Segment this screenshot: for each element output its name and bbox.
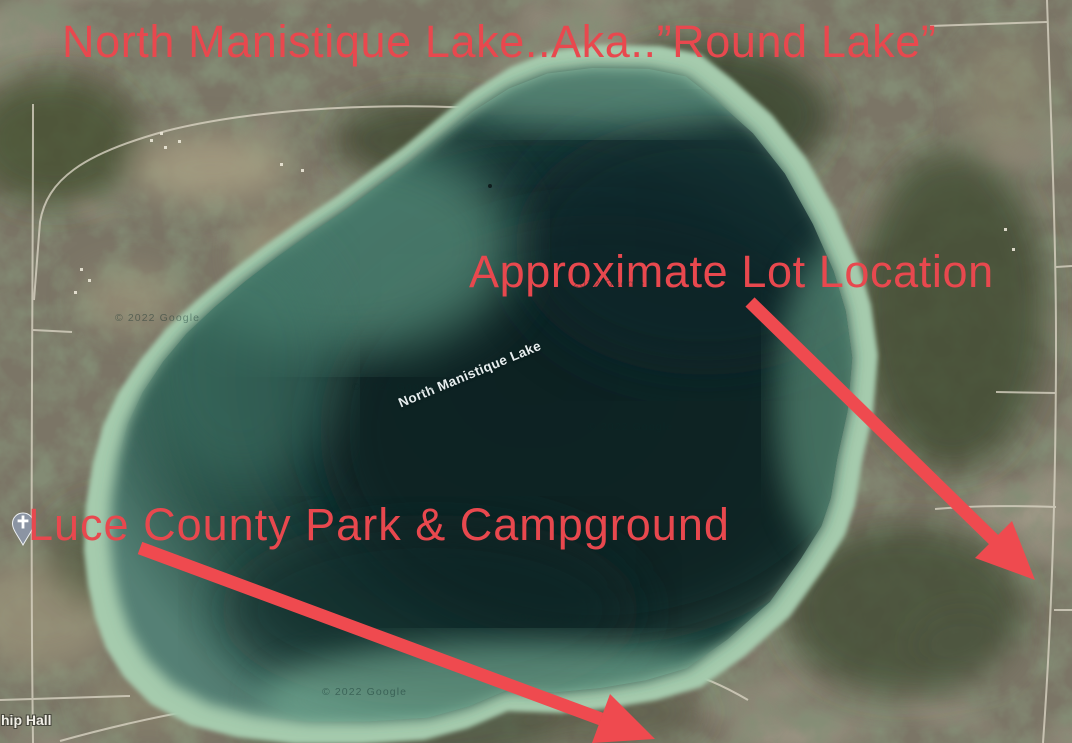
google-watermark: © 2022 Google [352, 381, 437, 393]
park-campground-label: Luce County Park & Campground [28, 502, 730, 547]
township-hall-label: hip Hall [1, 712, 52, 728]
google-watermark: © 2022 Google [588, 421, 673, 433]
lot-location-label: Approximate Lot Location [469, 249, 994, 294]
map-canvas[interactable] [0, 0, 1072, 743]
google-watermark: © 2022 Google [322, 686, 407, 698]
google-watermark: © 2022 Google [115, 312, 200, 324]
google-watermark: © 2022 Google [500, 612, 585, 624]
google-watermark: © 2022 Google [560, 278, 645, 290]
map-title-annotation: North Manistique Lake..Aka..”Round Lake” [62, 19, 936, 64]
annotated-satellite-map: North Manistique Lake..Aka..”Round Lake”… [0, 0, 1072, 743]
